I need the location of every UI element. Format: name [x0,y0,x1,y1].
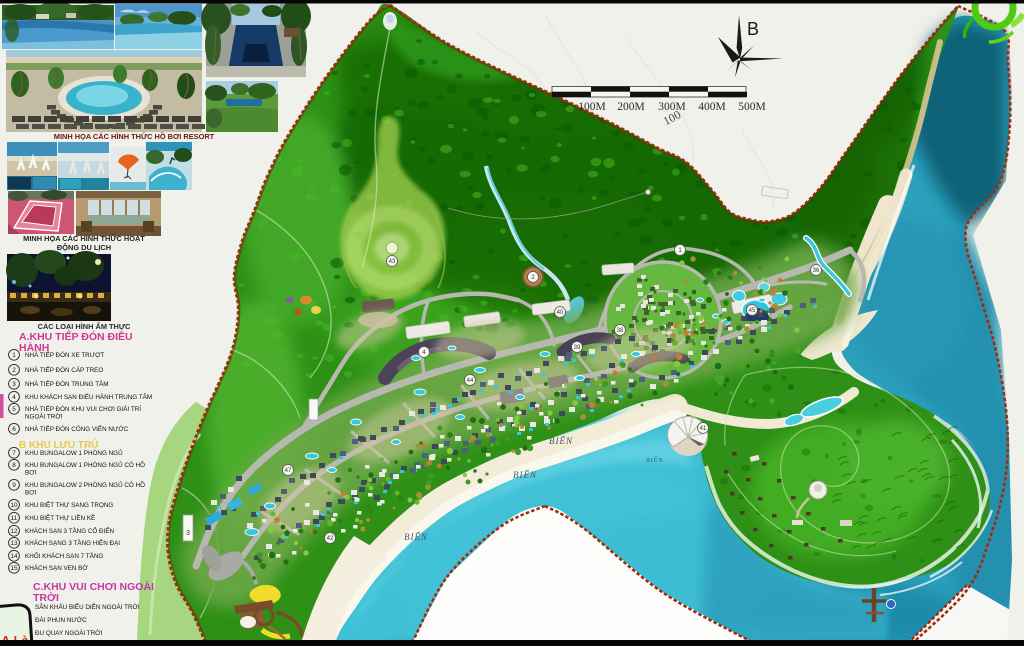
svg-text:ĐU QUAY NGOÀI TRỜI: ĐU QUAY NGOÀI TRỜI [35,628,103,637]
svg-text:38: 38 [617,328,624,334]
svg-text:3: 3 [186,530,190,537]
svg-text:44: 44 [467,378,474,384]
svg-text:39: 39 [574,345,581,351]
svg-text:3: 3 [12,381,16,388]
svg-text:8: 8 [12,462,16,469]
svg-text:5: 5 [12,406,16,413]
svg-text:10: 10 [10,502,18,509]
svg-text:13: 13 [10,540,18,547]
svg-text:11: 11 [11,515,18,522]
svg-text:BIỂN: BIỂN [404,532,428,542]
svg-text:400M: 400M [698,101,725,113]
svg-text:TRỜI: TRỜI [33,591,59,604]
svg-text:41: 41 [700,426,707,432]
svg-text:500M: 500M [738,101,765,113]
svg-text:1: 1 [12,352,16,359]
svg-text:BƠI: BƠI [25,470,37,477]
svg-text:KHU BUNGALOW 1 PHÒNG NGỦ: KHU BUNGALOW 1 PHÒNG NGỦ [25,448,123,457]
svg-text:100M: 100M [578,101,605,113]
svg-text:B: B [747,19,759,39]
svg-text:ĐỘNG DU LỊCH: ĐỘNG DU LỊCH [57,243,111,252]
svg-text:40: 40 [557,310,564,316]
svg-text:CÁC LOẠI HÌNH ẨM THỰC: CÁC LOẠI HÌNH ẨM THỰC [38,322,131,331]
svg-text:NGOÀI TRỜI: NGOÀI TRỜI [25,412,63,421]
svg-text:9: 9 [12,482,16,489]
svg-text:200M: 200M [617,101,644,113]
svg-text:14: 14 [10,553,18,560]
svg-text:43: 43 [389,259,396,265]
svg-text:KHÁCH SẠN VEN BỜ: KHÁCH SẠN VEN BỜ [25,563,88,572]
svg-text:MINH HỌA CÁC HÌNH THỨC HỒ BƠI: MINH HỌA CÁC HÌNH THỨC HỒ BƠI RESORT [54,131,215,141]
svg-text:BIỂN: BIỂN [513,470,537,480]
svg-text:36: 36 [813,268,820,274]
svg-text:BIỂN: BIỂN [549,436,573,446]
svg-text:KHU BIỆT THỰ SANG TRỌNG: KHU BIỆT THỰ SANG TRỌNG [25,500,113,509]
svg-text:45: 45 [749,308,756,314]
svg-text:MINH HỌA CÁC HÌNH THỨC HOẠT: MINH HỌA CÁC HÌNH THỨC HOẠT [23,234,145,243]
svg-text:42: 42 [327,536,334,542]
svg-text:7: 7 [12,450,16,457]
svg-text:ĐÀI PHUN NƯỚC: ĐÀI PHUN NƯỚC [35,615,87,624]
svg-text:4: 4 [12,394,16,401]
svg-text:6: 6 [12,426,16,433]
svg-text:12: 12 [10,528,18,535]
svg-text:47: 47 [285,468,292,474]
svg-text:2: 2 [12,367,16,374]
svg-text:15: 15 [10,565,18,572]
svg-text:BƠI: BƠI [25,490,37,497]
svg-text:BIỂN: BIỂN [646,456,663,464]
